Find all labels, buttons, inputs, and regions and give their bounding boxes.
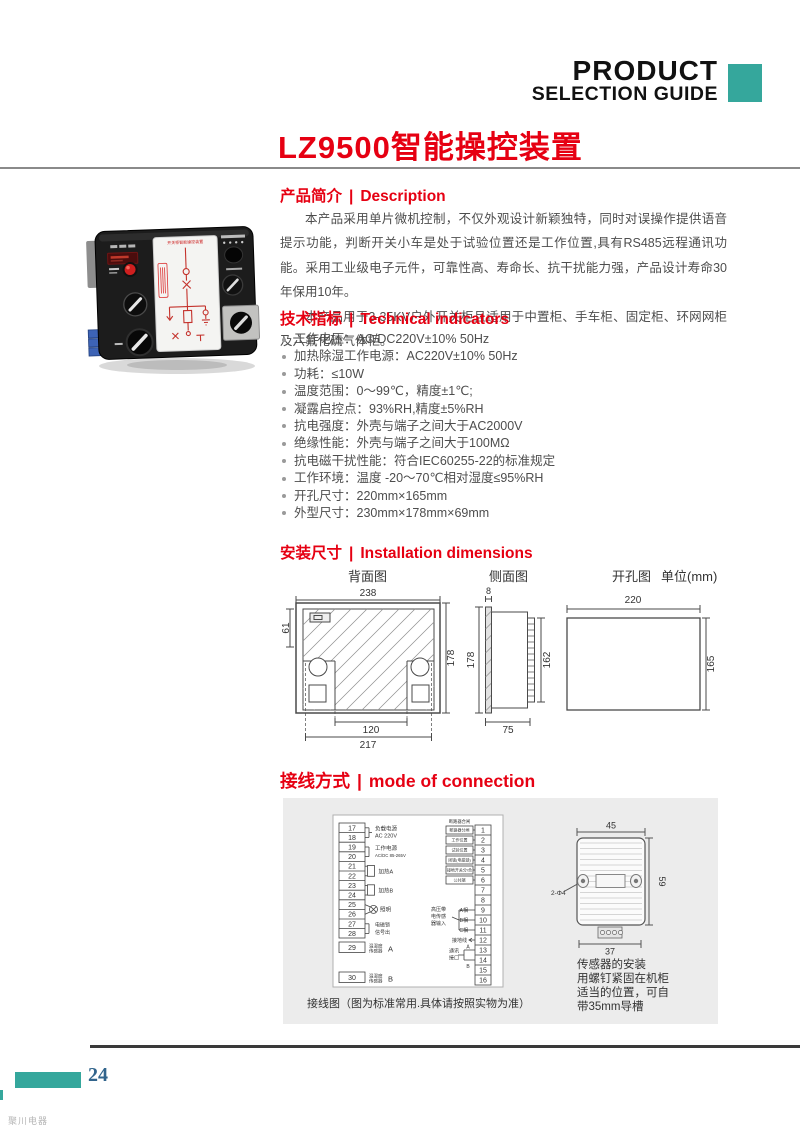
svg-text:B: B bbox=[388, 975, 393, 984]
side-view-label: 侧面图 bbox=[489, 566, 528, 585]
knob-left bbox=[123, 292, 147, 316]
install-heading: 安装尺寸|Installation dimensions bbox=[280, 541, 533, 563]
svg-text:21: 21 bbox=[348, 864, 356, 871]
description-heading-zh: 产品简介 bbox=[280, 188, 342, 205]
back-view-drawing: 238 61 178 120 217 bbox=[281, 588, 457, 751]
svg-text:适当的位置，可自: 适当的位置，可自 bbox=[577, 985, 669, 999]
svg-text:A: A bbox=[388, 945, 393, 954]
svg-text:负载电源: 负载电源 bbox=[375, 825, 398, 833]
svg-text:传感器: 传感器 bbox=[369, 978, 383, 985]
tech-spec-item: 抗电强度：外壳与端子之间大于AC2000V bbox=[281, 418, 726, 435]
wiring-caption: 接线图（图为标准常用.具体请按照实物为准） bbox=[307, 996, 530, 1010]
svg-text:28: 28 bbox=[348, 931, 356, 938]
product-photo: 开关柜智能操控装置 bbox=[85, 215, 265, 377]
svg-text:17: 17 bbox=[348, 825, 356, 832]
svg-text:29: 29 bbox=[348, 945, 356, 952]
dim-hole-height: 165 bbox=[706, 655, 717, 672]
hole-view-label: 开孔图 bbox=[612, 566, 651, 585]
svg-text:19: 19 bbox=[348, 845, 356, 852]
svg-text:接口: 接口 bbox=[449, 955, 459, 962]
catalog-page: PRODUCT SELECTION GUIDE LZ9500智能操控装置 bbox=[0, 0, 800, 1131]
svg-text:18: 18 bbox=[348, 835, 356, 842]
connection-heading: 接线方式|mode of connection bbox=[280, 768, 535, 793]
svg-text:30: 30 bbox=[348, 975, 356, 982]
dim-side-panel: 8 bbox=[486, 586, 491, 596]
unit-label: 单位(mm) bbox=[661, 566, 717, 585]
svg-text:公共端: 公共端 bbox=[454, 877, 466, 883]
title-divider-line bbox=[0, 167, 800, 169]
dim-back-bottom-width: 217 bbox=[360, 740, 377, 751]
svg-text:13: 13 bbox=[479, 948, 487, 955]
brand-product: PRODUCT bbox=[532, 57, 718, 85]
tech-spec-item: 绝缘性能：外壳与端子之间大于100MΩ bbox=[281, 435, 726, 452]
svg-text:15: 15 bbox=[479, 968, 487, 975]
device-body: 开关柜智能操控装置 bbox=[85, 226, 260, 360]
mimic-panel-title: 开关柜智能操控装置 bbox=[167, 238, 203, 245]
knob-bottom-left bbox=[126, 329, 153, 356]
teal-square-icon bbox=[728, 64, 762, 102]
footer-teal-bar bbox=[15, 1072, 81, 1088]
dim-side-depth: 75 bbox=[502, 725, 514, 736]
svg-text:C相: C相 bbox=[459, 927, 468, 934]
svg-text:2: 2 bbox=[481, 838, 485, 845]
dim-hole-width: 220 bbox=[625, 595, 642, 606]
dim-sensor-holes: 2-Φ4 bbox=[551, 890, 566, 897]
tech-spec-item: 外型尺寸：230mm×178mm×69mm bbox=[281, 505, 726, 522]
svg-text:传感器: 传感器 bbox=[369, 948, 383, 955]
dim-sensor-width: 45 bbox=[606, 821, 616, 831]
svg-text:加热A: 加热A bbox=[379, 867, 394, 875]
dim-sensor-height: 59 bbox=[657, 876, 667, 886]
svg-text:电传感: 电传感 bbox=[431, 913, 446, 920]
dim-back-height: 178 bbox=[446, 649, 457, 666]
svg-text:14: 14 bbox=[479, 958, 487, 965]
svg-text:B相: B相 bbox=[460, 917, 468, 924]
dim-sensor-base: 37 bbox=[605, 947, 615, 957]
svg-text:器输入: 器输入 bbox=[431, 920, 446, 927]
dim-side-terminal-height: 162 bbox=[542, 651, 553, 668]
svg-text:带35mm导槽: 带35mm导槽 bbox=[577, 1000, 644, 1013]
installation-drawings: 238 61 178 120 217 bbox=[280, 585, 720, 755]
tech-spec-item: 开孔尺寸：220mm×165mm bbox=[281, 488, 726, 505]
tech-heading: 技术指标|Technical indicators bbox=[280, 307, 509, 329]
svg-text:4: 4 bbox=[481, 858, 485, 865]
tech-spec-list: 工作电压：AC/DC220V±10% 50Hz 加热除湿工作电源：AC220V±… bbox=[281, 331, 726, 522]
description-paragraph: 本产品采用单片微机控制，不仅外观设计新颖独特，同时对误操作提供语音提示功能，判断… bbox=[280, 207, 727, 305]
install-heading-zh: 安装尺寸 bbox=[280, 545, 342, 562]
svg-text:断路器合闸: 断路器合闸 bbox=[449, 818, 470, 825]
svg-text:16: 16 bbox=[479, 978, 487, 985]
svg-text:工作电源: 工作电源 bbox=[375, 844, 398, 852]
svg-text:试验位置: 试验位置 bbox=[452, 847, 468, 853]
dim-back-slot-width: 120 bbox=[363, 725, 380, 736]
description-heading-en: Description bbox=[360, 188, 445, 205]
tech-spec-item: 温度范围：0～99℃，精度±1℃; bbox=[281, 383, 726, 400]
svg-text:27: 27 bbox=[348, 921, 356, 928]
dim-back-width: 238 bbox=[360, 588, 377, 599]
tech-spec-item: 功耗：≤10W bbox=[281, 366, 726, 383]
svg-text:接地开关分/合: 接地开关分/合 bbox=[447, 867, 472, 873]
tech-spec-item: 加热除湿工作电源：AC220V±10% 50Hz bbox=[281, 348, 726, 365]
svg-text:通讯: 通讯 bbox=[449, 948, 459, 955]
description-heading: 产品简介|Description bbox=[280, 184, 446, 206]
svg-text:20: 20 bbox=[348, 854, 356, 861]
dim-side-height: 178 bbox=[466, 651, 477, 668]
brand-block: PRODUCT SELECTION GUIDE bbox=[532, 57, 718, 103]
brand-selection-guide: SELECTION GUIDE bbox=[532, 85, 718, 103]
svg-text:断路器分闸: 断路器分闸 bbox=[450, 827, 470, 833]
svg-text:10: 10 bbox=[479, 918, 487, 925]
watermark-text: 聚川电器 bbox=[8, 1114, 48, 1127]
svg-text:照明: 照明 bbox=[380, 907, 392, 914]
red-button bbox=[123, 263, 136, 276]
svg-text:工作位置: 工作位置 bbox=[452, 837, 468, 843]
svg-text:信号出: 信号出 bbox=[375, 929, 390, 936]
page-title: LZ9500智能操控装置 bbox=[278, 122, 583, 167]
svg-text:12: 12 bbox=[479, 938, 487, 945]
sensor-note: 传感器的安装 用螺钉紧固在机柜 适当的位置，可自 带35mm导槽 bbox=[577, 957, 669, 1013]
svg-text:接地线: 接地线 bbox=[452, 937, 467, 944]
svg-text:A相: A相 bbox=[460, 907, 468, 914]
wiring-diagram: 17 18 19 20 21 22 23 24 25 26 27 28 29 3… bbox=[283, 798, 718, 1024]
tech-spec-item: 凝露启控点：93%RH,精度±5%RH bbox=[281, 401, 726, 418]
svg-text:加热B: 加热B bbox=[379, 887, 394, 895]
svg-text:3: 3 bbox=[481, 848, 485, 855]
tech-heading-en: Technical indicators bbox=[360, 311, 509, 328]
svg-text:高压带: 高压带 bbox=[431, 906, 446, 913]
tech-spec-item: 工作环境：温度 -20～70℃相对湿度≤95%RH bbox=[281, 470, 726, 487]
tech-spec-item: 工作电压：AC/DC220V±10% 50Hz bbox=[281, 331, 726, 348]
dim-back-top-offset: 61 bbox=[281, 622, 292, 634]
svg-text:AC/DC 85-265V: AC/DC 85-265V bbox=[375, 853, 406, 858]
svg-text:26: 26 bbox=[348, 912, 356, 919]
page-number: 24 bbox=[88, 1064, 108, 1087]
svg-text:电磁锁: 电磁锁 bbox=[375, 922, 390, 929]
footer-divider-line bbox=[90, 1045, 800, 1048]
page-edge-mark bbox=[0, 1090, 3, 1100]
side-view-drawing: 8 178 162 75 bbox=[466, 586, 553, 736]
tech-spec-item: 抗电磁干扰性能：符合IEC60255-22的标准规定 bbox=[281, 453, 726, 470]
svg-text:1: 1 bbox=[481, 828, 485, 835]
install-heading-en: Installation dimensions bbox=[360, 545, 532, 562]
svg-text:闭锁(电磁锁): 闭锁(电磁锁) bbox=[448, 857, 471, 863]
back-view-label: 背面图 bbox=[348, 566, 387, 585]
svg-text:用螺钉紧固在机柜: 用螺钉紧固在机柜 bbox=[577, 971, 669, 985]
knob-bottom-right bbox=[222, 305, 259, 340]
svg-text:23: 23 bbox=[348, 883, 356, 890]
svg-text:24: 24 bbox=[348, 893, 356, 900]
svg-text:9: 9 bbox=[481, 908, 485, 915]
svg-text:5: 5 bbox=[481, 868, 485, 875]
tech-heading-zh: 技术指标 bbox=[280, 311, 342, 328]
hole-view-drawing: 220 165 bbox=[567, 595, 717, 710]
svg-text:22: 22 bbox=[348, 873, 356, 880]
sensor-drawing bbox=[564, 828, 653, 948]
connection-heading-en: mode of connection bbox=[369, 771, 535, 791]
svg-text:11: 11 bbox=[479, 928, 486, 935]
knob-right bbox=[222, 275, 243, 296]
buzzer bbox=[224, 247, 243, 264]
connection-heading-zh: 接线方式 bbox=[280, 771, 350, 791]
svg-text:25: 25 bbox=[348, 902, 356, 909]
svg-text:7: 7 bbox=[481, 888, 485, 895]
svg-text:8: 8 bbox=[481, 898, 485, 905]
svg-text:AC 220V: AC 220V bbox=[375, 834, 397, 840]
svg-text:6: 6 bbox=[481, 878, 485, 885]
svg-text:传感器的安装: 传感器的安装 bbox=[577, 957, 646, 971]
